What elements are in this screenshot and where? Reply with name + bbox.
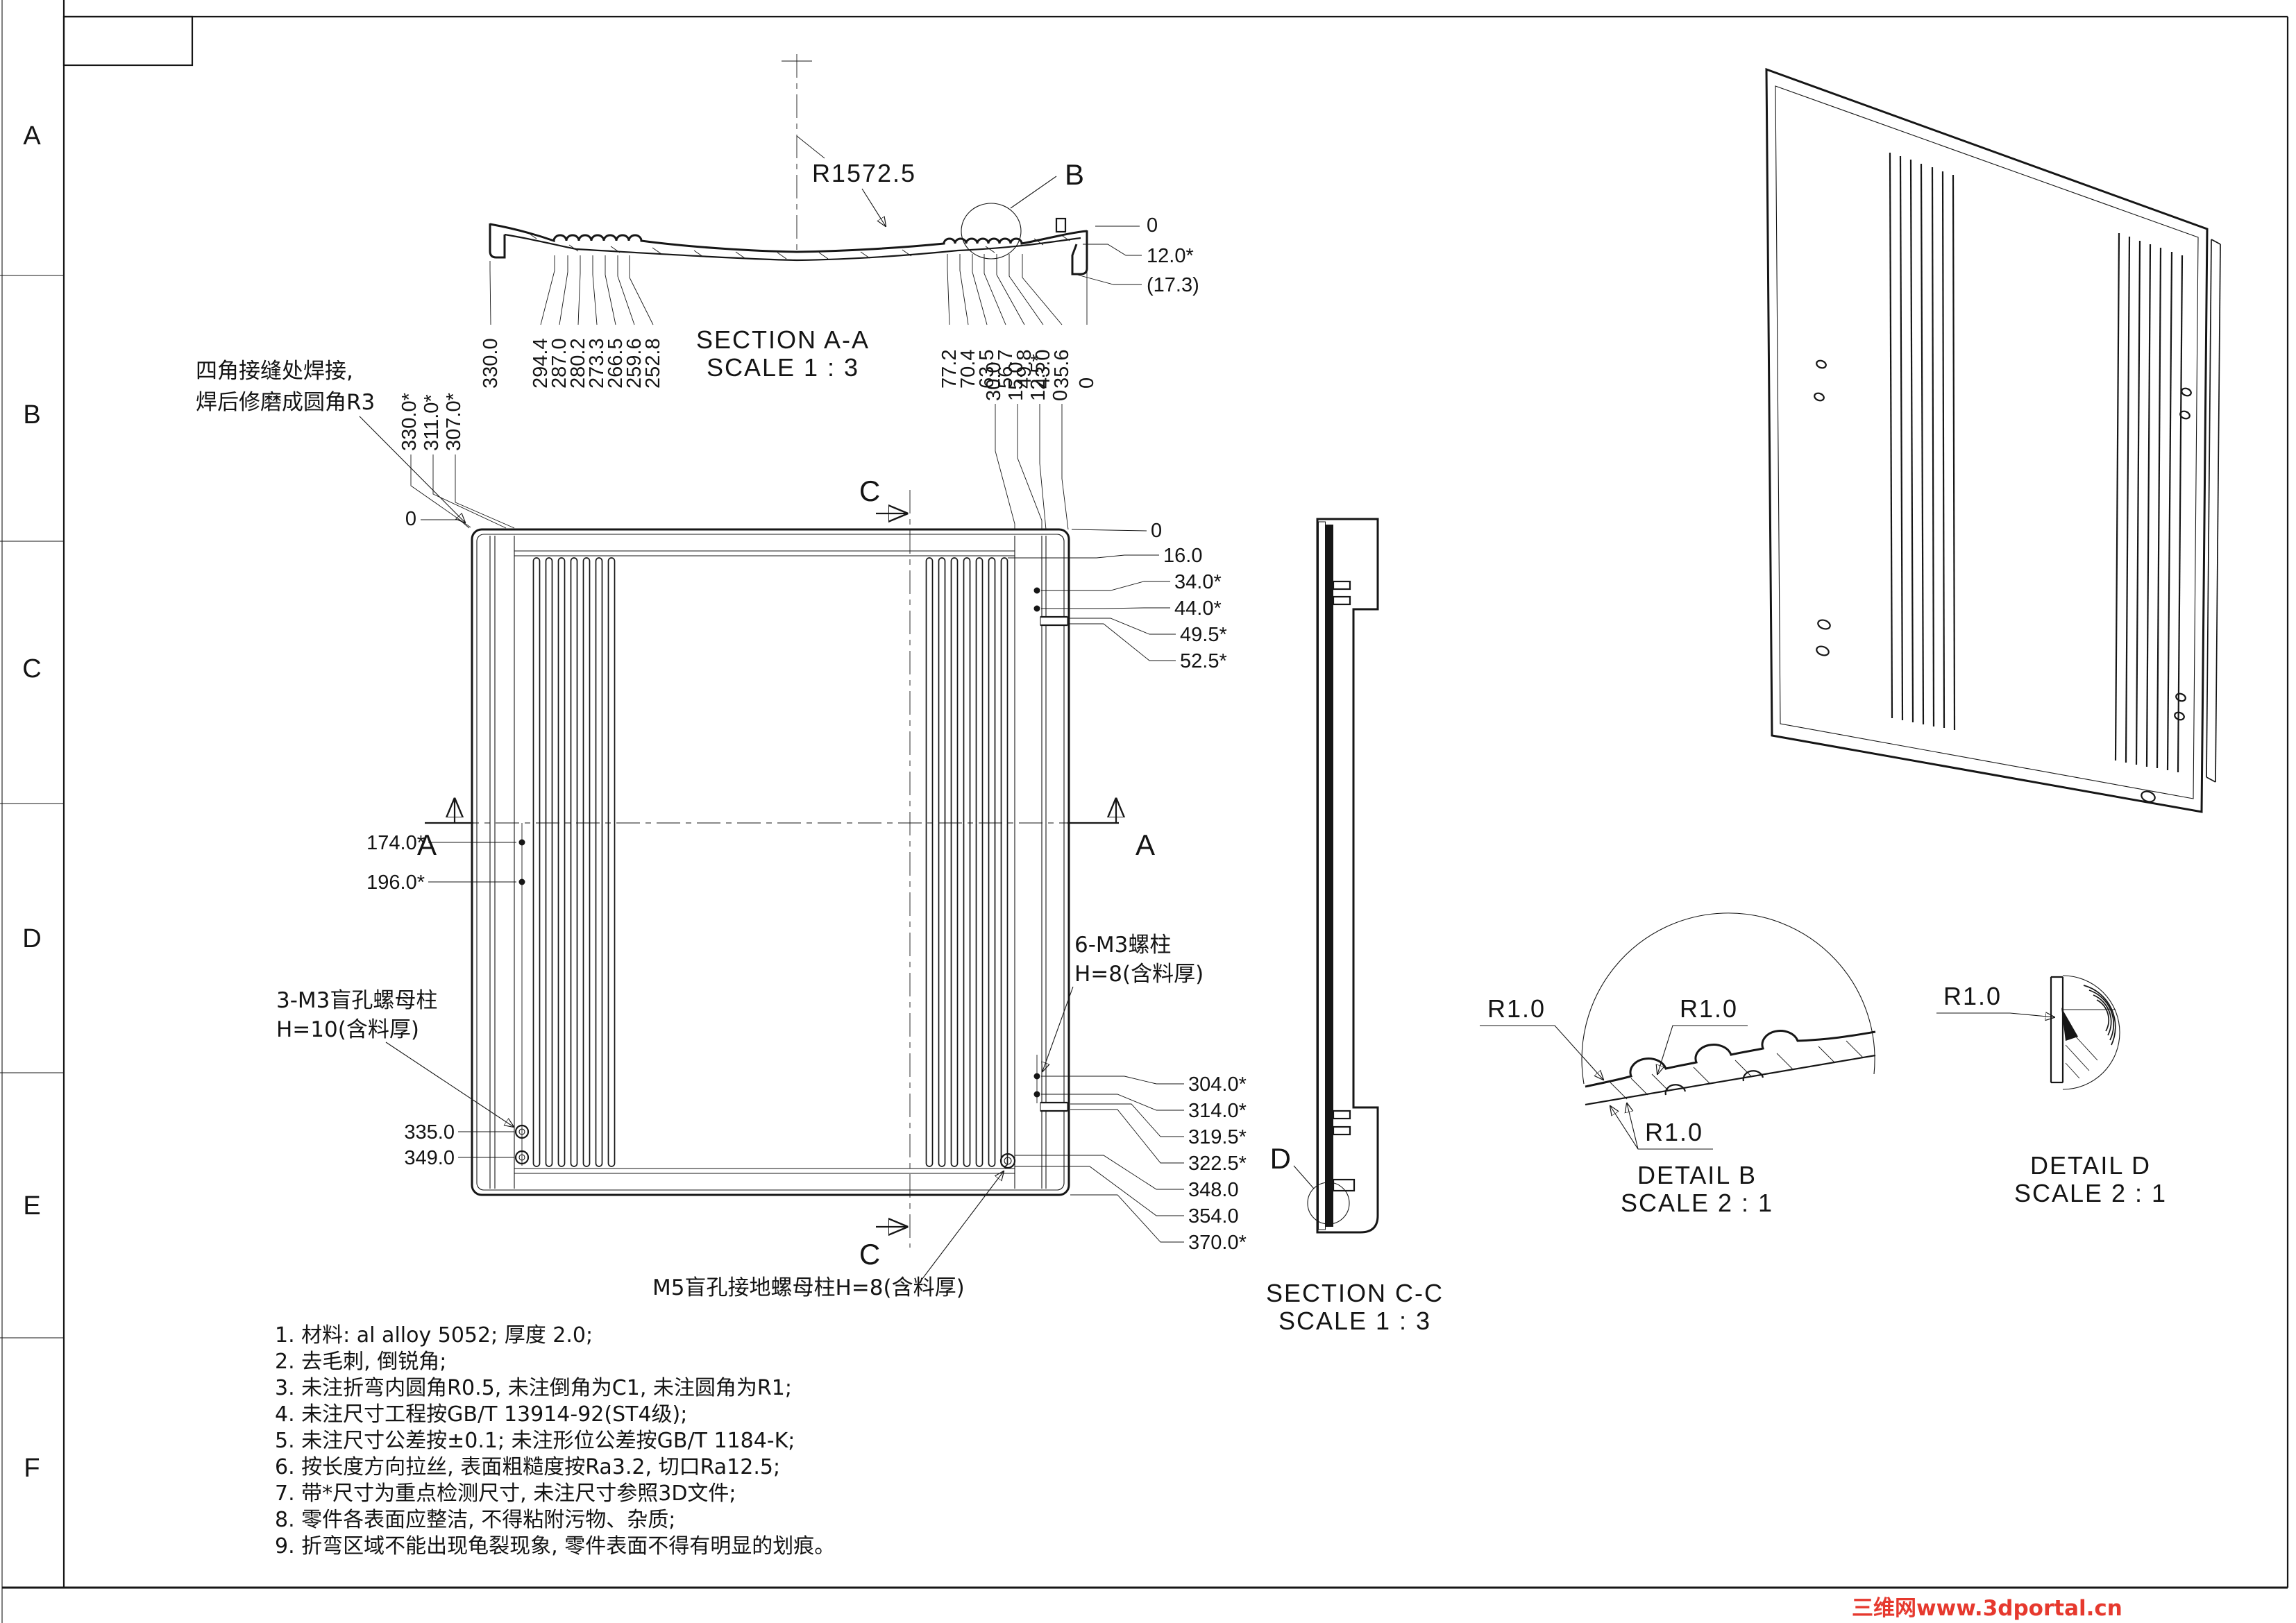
aa-left-hook	[490, 223, 505, 257]
zone-label-a: A	[23, 121, 41, 151]
aa-left-fan	[490, 255, 653, 325]
detail-d-bar	[2051, 977, 2063, 1082]
dim-label: 354.0	[1188, 1205, 1239, 1227]
detail-b-scale: SCALE 2 : 1	[1621, 1189, 1773, 1217]
panel-outline	[472, 529, 1069, 1195]
dim-label: 35.6	[1051, 350, 1073, 389]
section-aa: B R1572.5 330.0 294.4 287.0 280.2 273.3 …	[480, 54, 1199, 389]
cc-tabs	[1333, 581, 1354, 1191]
note-line: 8. 零件各表面应整洁, 不得粘附污物、杂质;	[275, 1508, 675, 1532]
front-rightlower-leaders	[1015, 1076, 1184, 1242]
detail-b-hatch	[1610, 1041, 1863, 1099]
dim-label: 196.0*	[366, 872, 425, 894]
dim-label: 370.0*	[1188, 1232, 1247, 1254]
front-view: A A C C 四角接缝处焊接, 焊后修磨成圆角R3 0 330.0* 311.…	[196, 354, 1247, 1300]
note-line: 7. 带*尺寸为重点检测尺寸, 未注尺寸参照3D文件;	[275, 1481, 736, 1506]
m3-right-note-line1: 6-M3螺柱	[1074, 933, 1171, 958]
section-marker-a: A	[1136, 829, 1155, 861]
note-line: 9. 折弯区域不能出现龟裂现象, 零件表面不得有明显的划痕。	[275, 1534, 835, 1558]
radius-label: R1.0	[1487, 994, 1546, 1023]
general-notes: 1. 材料: al alloy 5052; 厚度 2.0; 2. 去毛刺, 倒锐…	[275, 1323, 835, 1558]
weld-note-line2: 焊后修磨成圆角R3	[196, 390, 375, 415]
iso-outline	[1766, 69, 2207, 812]
aa-hatch	[527, 232, 1070, 259]
dim-label: 335.0	[404, 1121, 455, 1144]
radius-label: R1572.5	[812, 159, 916, 187]
m3-left-note-line1: 3-M3盲孔螺母柱	[276, 988, 437, 1013]
aa-stud-tab	[1056, 219, 1065, 232]
iso-inner-edge	[1775, 86, 2198, 799]
dim-label: 0	[1049, 390, 1072, 401]
section-aa-title: SECTION A-A	[696, 325, 870, 354]
section-cc: D SECTION C-C SCALE 1 : 3	[1266, 519, 1444, 1335]
front-topright-leaders	[995, 404, 1068, 529]
drawing-canvas: A B C D E F B R1572.5 330.0 294.4 287.0 …	[0, 0, 2296, 1623]
isometric-view	[1766, 69, 2220, 812]
detail-d: R1.0 DETAIL D SCALE 2 : 1	[1936, 976, 2167, 1207]
weld-note-line1: 四角接缝处焊接,	[196, 359, 353, 384]
detail-b: R1.0 R1.0 R1.0 DETAIL B SCALE 2 : 1	[1480, 913, 1875, 1217]
dim-label: 304.0*	[1188, 1073, 1247, 1096]
edge-notches	[1040, 617, 1067, 1111]
detail-b-top-edge	[1585, 1031, 1875, 1087]
zone-labels: A B C D E F	[22, 121, 41, 1483]
studs	[516, 588, 1040, 1169]
dim-label: 16.0	[1163, 545, 1202, 567]
dim-label: 348.0	[1188, 1179, 1239, 1201]
note-line: 1. 材料: al alloy 5052; 厚度 2.0;	[275, 1323, 593, 1348]
dim-label: 52.5*	[1180, 650, 1227, 672]
drawing-sheet: A B C D E F B R1572.5 330.0 294.4 287.0 …	[0, 0, 2296, 1623]
dim-label: 174.0*	[366, 832, 425, 854]
radius-label: R1.0	[1680, 994, 1738, 1023]
front-topleft-leaders	[411, 454, 514, 528]
detail-b-title: DETAIL B	[1637, 1161, 1757, 1189]
dim-label: 314.0*	[1188, 1100, 1247, 1122]
radius-label: R1.0	[1943, 982, 2002, 1010]
aa-left-dims: 330.0 294.4 287.0 280.2 273.3 266.5 259.…	[480, 338, 664, 389]
iso-slots-left	[1890, 153, 1955, 730]
dim-label: 12.5*	[1027, 354, 1049, 401]
dim-label: 330.0*	[398, 393, 421, 451]
dim-label: 0	[1151, 520, 1162, 542]
zone-label-e: E	[23, 1191, 40, 1221]
dim-label: (17.3)	[1147, 274, 1199, 296]
front-rightupper-leaders	[1008, 529, 1176, 661]
note-line: 3. 未注折弯内圆角R0.5, 未注倒角为C1, 未注圆角为R1;	[275, 1376, 792, 1400]
m3-right-note-line2: H=8(含料厚)	[1074, 962, 1204, 987]
note-line: 5. 未注尺寸公差按±0.1; 未注形位公差按GB/T 1184-K;	[275, 1429, 795, 1453]
dim-label: 330.0	[480, 338, 502, 389]
detail-d-title: DETAIL D	[2030, 1151, 2151, 1180]
section-aa-scale: SCALE 1 : 3	[707, 353, 859, 382]
detail-b-ref: B	[1065, 158, 1084, 191]
m5-note: M5盲孔接地螺母柱H=8(含料厚)	[652, 1275, 965, 1300]
section-cc-title: SECTION C-C	[1266, 1279, 1444, 1307]
dim-label: 311.0*	[421, 394, 443, 451]
m3-left-note-line2: H=10(含料厚)	[276, 1017, 419, 1042]
dim-label: 322.5*	[1188, 1153, 1247, 1175]
detail-b-bottom-edge	[1585, 1055, 1875, 1105]
zone-label-f: F	[24, 1454, 40, 1483]
dim-label: 307.0*	[443, 393, 465, 451]
section-marker-c: C	[859, 475, 880, 507]
aa-right-fan	[947, 239, 1087, 325]
detail-d-hem-arcs	[2084, 985, 2116, 1045]
detail-d-fillet	[2061, 1008, 2078, 1041]
lou­ver-slots-right	[927, 558, 1008, 1166]
detail-d-scale: SCALE 2 : 1	[2014, 1179, 2167, 1207]
dim-label: 49.5*	[1180, 624, 1227, 646]
dim-label: 44.0*	[1174, 597, 1222, 620]
zone-label-c: C	[22, 654, 41, 683]
note-line: 6. 按长度方向拉丝, 表面粗糙度按Ra3.2, 切口Ra12.5;	[275, 1455, 780, 1479]
aa-right-hook	[1072, 230, 1087, 274]
iso-studs	[1814, 359, 2193, 804]
watermark: 三维网www.3dportal.cn	[1852, 1596, 2122, 1621]
iso-right-flange	[2206, 239, 2220, 782]
dim-label: 34.0*	[1174, 571, 1222, 593]
title-block-box	[64, 17, 192, 65]
dim-label: 0	[1076, 377, 1098, 389]
dim-label: 0	[1147, 214, 1158, 237]
dim-label: 12.0*	[1147, 245, 1194, 267]
louver-slots-left	[534, 558, 615, 1166]
note-line: 2. 去毛刺, 倒锐角;	[275, 1350, 446, 1374]
dim-label: 349.0	[404, 1147, 455, 1169]
dim-label: 15.0	[1005, 362, 1027, 401]
zone-label-b: B	[23, 400, 40, 430]
zone-label-d: D	[22, 924, 41, 953]
radius-label: R1.0	[1645, 1118, 1703, 1146]
detail-d-ref: D	[1270, 1142, 1291, 1175]
panel-fold-lines	[490, 536, 1046, 1189]
dim-label: 319.5*	[1188, 1126, 1247, 1148]
iso-slots-right	[2116, 233, 2182, 772]
cc-section-fill	[1326, 525, 1333, 1227]
dim-label: 252.8	[642, 338, 664, 389]
note-line: 4. 未注尺寸工程按GB/T 13914-92(ST4级);	[275, 1402, 687, 1427]
section-cc-scale: SCALE 1 : 3	[1278, 1307, 1431, 1335]
dim-label: 30.0	[983, 362, 1005, 401]
dim-label: 0	[405, 508, 416, 530]
section-marker-c: C	[859, 1238, 880, 1271]
